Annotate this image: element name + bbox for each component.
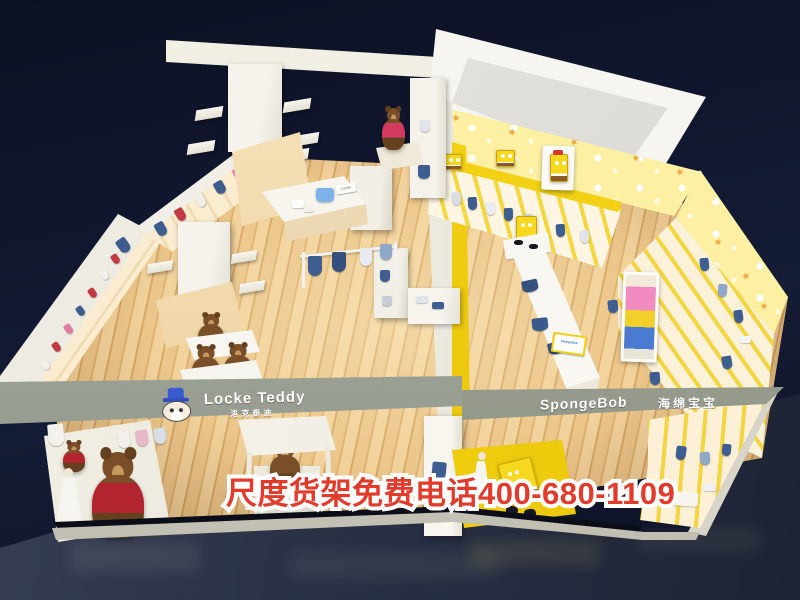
folded-clothes — [740, 336, 751, 343]
locke-teddy-sign-content: Locke Teddy 洛克泰迪 — [158, 384, 339, 423]
denim-garment — [699, 258, 709, 272]
blue-bag — [316, 188, 334, 202]
child-mannequin-head — [64, 468, 73, 477]
denim-garment — [733, 309, 744, 323]
kids-poster — [620, 271, 659, 362]
reflection — [70, 542, 200, 572]
denim-dress — [308, 256, 322, 276]
star-icon: ★ — [675, 167, 684, 177]
hotline-text: 尺度货架免费电话400-680-1109 — [226, 468, 675, 513]
folded-clothes — [292, 200, 304, 208]
denim-garment — [607, 300, 618, 314]
locke-teddy-subtitle: 洛克泰迪 — [230, 407, 274, 419]
star-icon: ★ — [760, 302, 769, 312]
display-tower — [228, 64, 282, 152]
locke-teddy-title: Locke Teddy — [204, 388, 306, 408]
spongebob-figure — [496, 150, 515, 167]
spongebob-title: SpongeBob — [540, 394, 628, 413]
wall-shelf-unit — [410, 78, 446, 198]
teddy-bear-mannequin — [382, 108, 405, 150]
denim-dress — [332, 252, 346, 272]
folded-clothes — [304, 206, 314, 212]
reflection — [290, 552, 500, 578]
spongebob-red-hat — [553, 150, 563, 155]
denim-garment — [556, 224, 566, 238]
folded-clothes — [416, 296, 428, 303]
store-render: ★ ★ ★ ★ ★ ★ ★ ★ SpongeBob — [0, 0, 800, 600]
hanging-garment — [485, 202, 495, 216]
denim-garment — [504, 208, 513, 221]
rack-post — [302, 252, 305, 288]
star-icon: ★ — [631, 153, 641, 163]
denim-garment — [718, 284, 728, 298]
hanging-garment — [579, 230, 589, 244]
spongebob-poster-figure — [550, 154, 568, 182]
denim-garment — [380, 244, 392, 260]
child-mannequin-head — [478, 452, 486, 460]
white-cabinet — [374, 248, 408, 318]
spongebob-figure — [444, 154, 462, 170]
spongebob-sign-content: SpongeBob 海绵宝宝 — [540, 390, 760, 416]
teddy-logo-face — [162, 400, 192, 422]
kids-shoes — [529, 244, 538, 249]
denim-garment — [380, 270, 390, 282]
hanging-garment — [451, 192, 461, 206]
kids-shoes — [514, 240, 523, 245]
denim-garment — [468, 197, 478, 211]
spongebob-subtitle: 海绵宝宝 — [658, 394, 718, 412]
teddy-bear-body — [382, 119, 405, 150]
clothes-table — [672, 491, 699, 507]
hanging-garment — [382, 296, 392, 306]
denim-garment — [418, 165, 430, 179]
hanging-garment — [360, 248, 372, 266]
folded-clothes — [432, 302, 444, 309]
teddy-logo-icon — [158, 387, 195, 420]
rack-post — [394, 242, 397, 278]
folded-clothes — [704, 484, 716, 491]
hanging-garment — [420, 120, 430, 132]
denim-garment — [650, 372, 661, 386]
reflection — [470, 540, 600, 566]
denim-garment — [700, 452, 711, 466]
